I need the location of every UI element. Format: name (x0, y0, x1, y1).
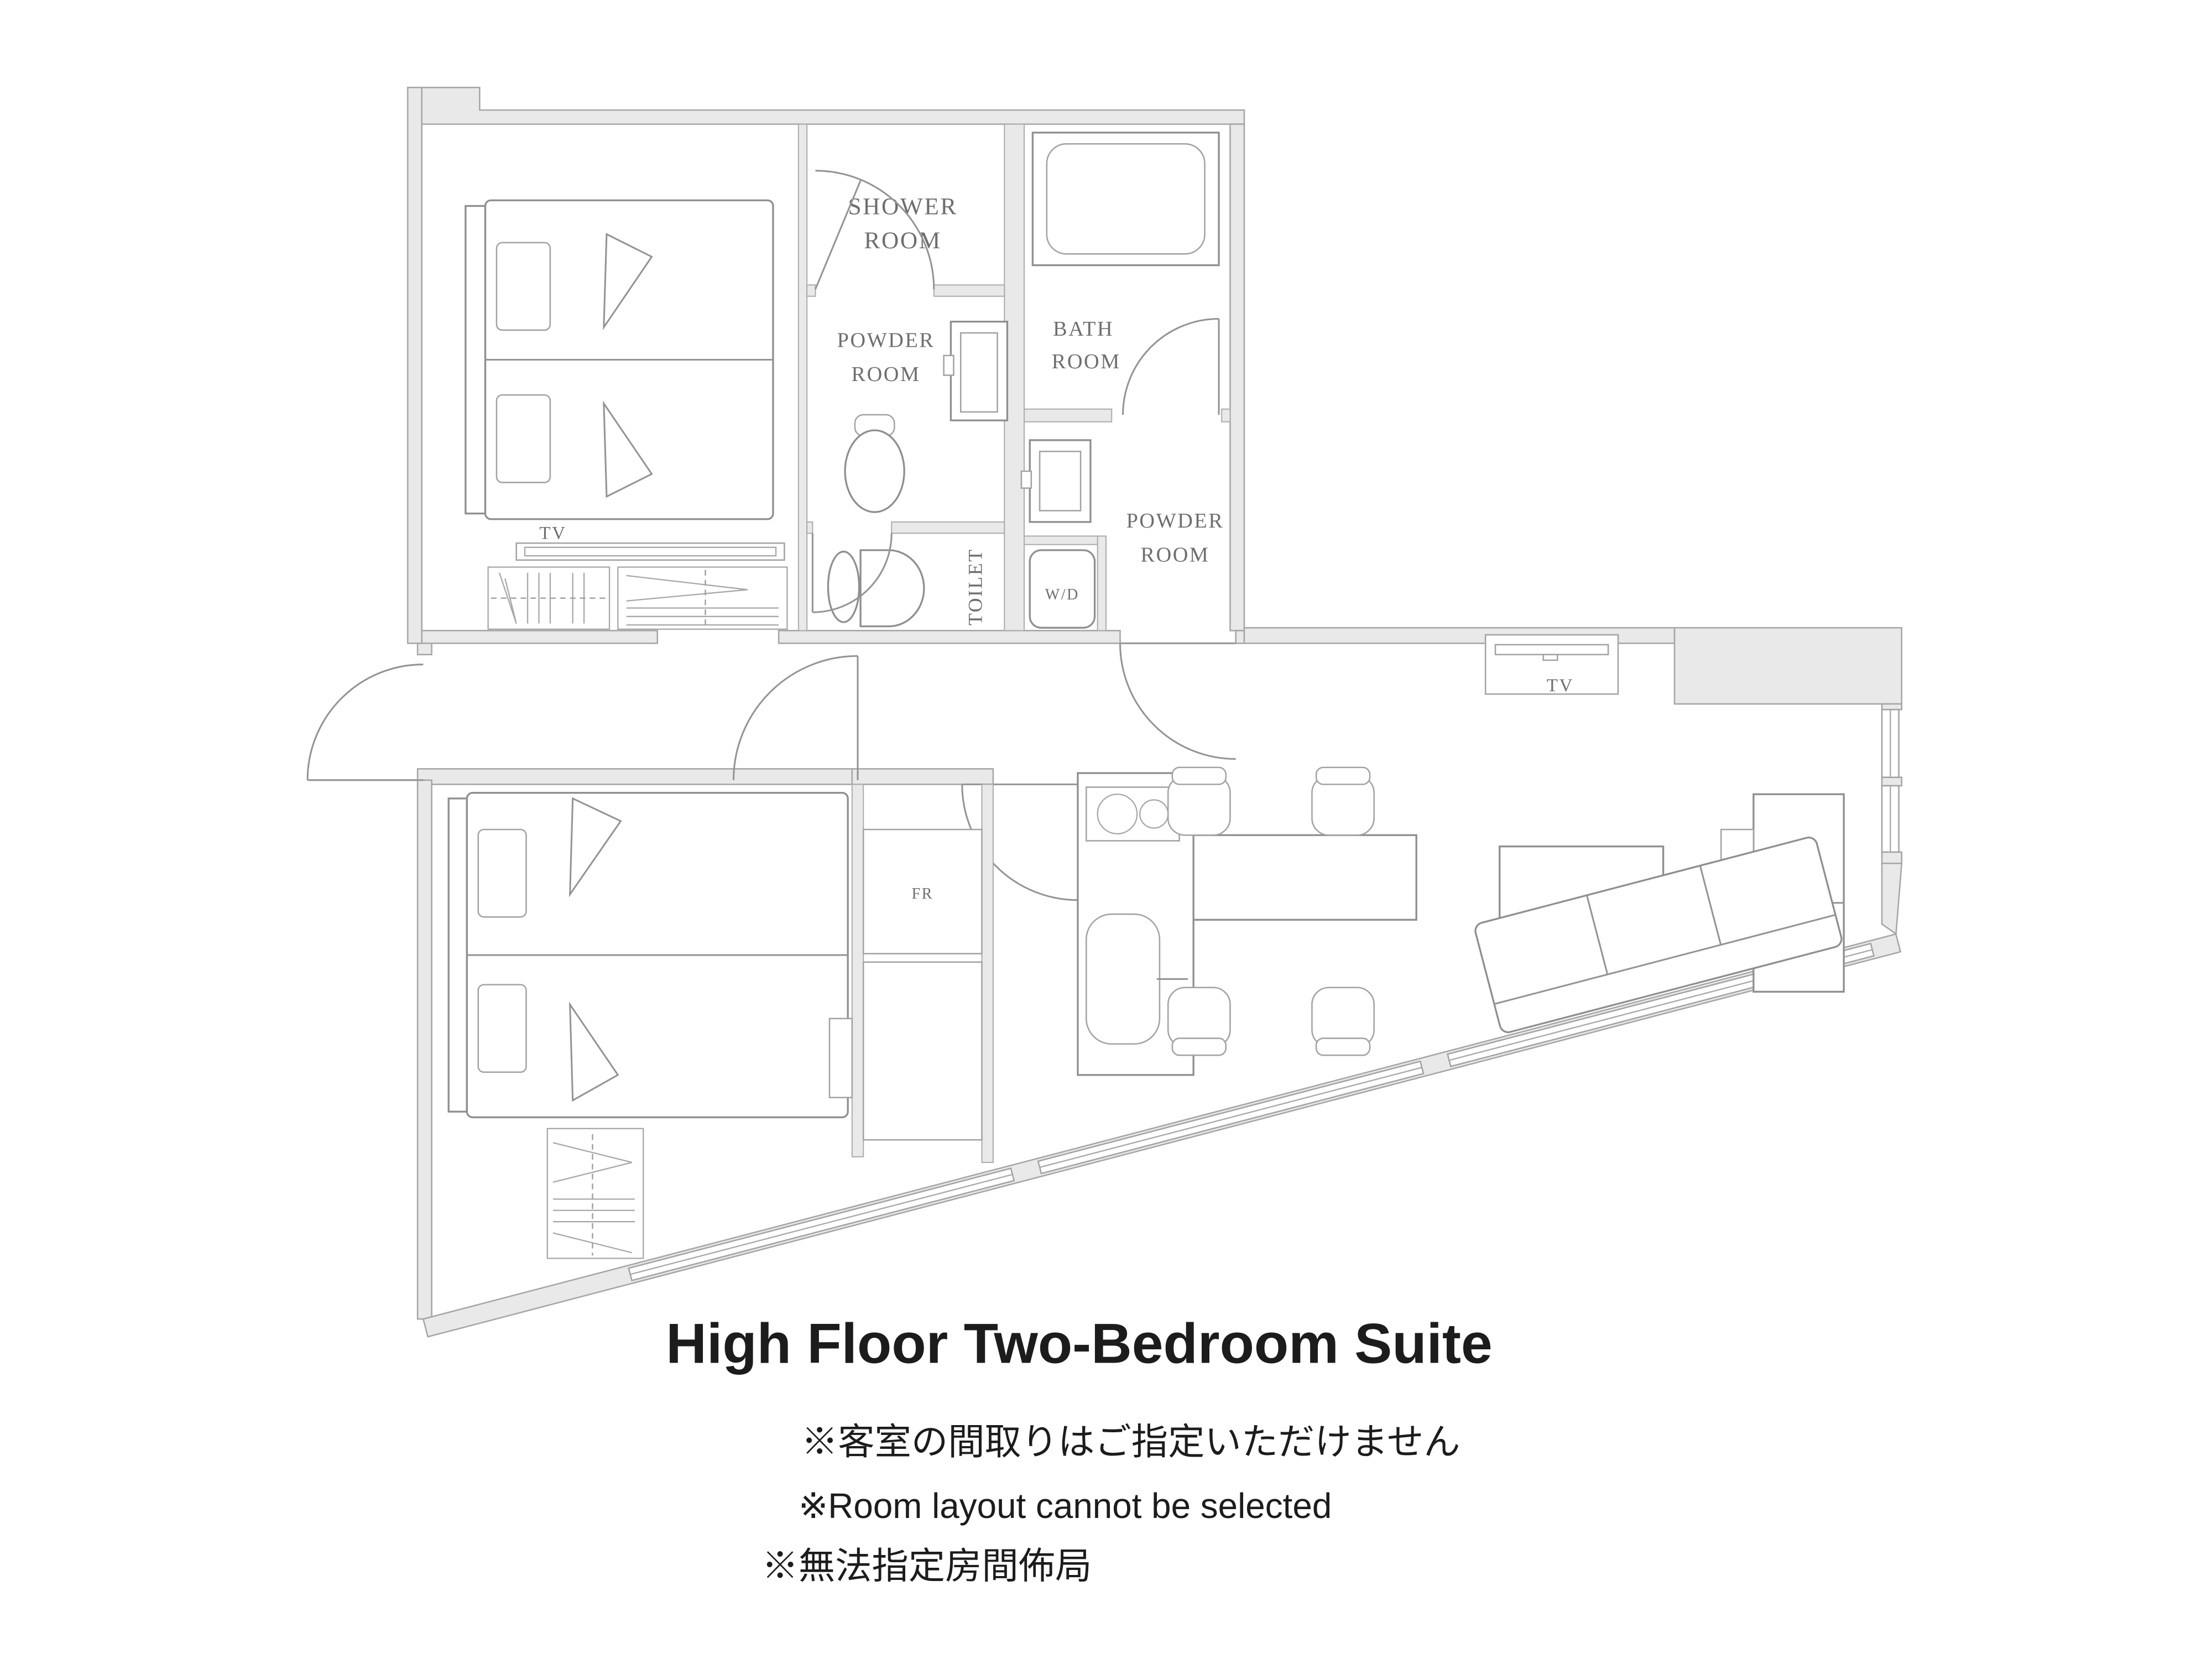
svg-text:ROOM: ROOM (1052, 350, 1121, 373)
tv-shelf (1495, 645, 1608, 655)
bedroom1-closet (488, 567, 787, 629)
living-tv-niche: TV (1485, 635, 1618, 696)
dining-chair (1312, 988, 1374, 1055)
note-en: ※Room layout cannot be selected (799, 1486, 1332, 1526)
pillow (497, 395, 550, 482)
floor-plan-page: TV SHOWER ROOM POWDER ROOM (0, 0, 2212, 1659)
fridge-label: FR (912, 885, 933, 902)
dining-chair (1168, 988, 1230, 1055)
svg-text:ROOM: ROOM (852, 363, 921, 386)
vanity-handle (1021, 471, 1031, 488)
bedroom2-beds (448, 793, 848, 1118)
tv-label-living: TV (1547, 675, 1574, 696)
door-arc (1123, 319, 1219, 415)
shower-room: SHOWER ROOM (815, 171, 957, 289)
vanity-handle (944, 356, 954, 375)
powder-room-2: POWDER ROOM W/D (1021, 440, 1236, 759)
fridge-column: FR (830, 784, 993, 1162)
dining-area (1168, 768, 1416, 1055)
toilet-label: TOILET (964, 548, 987, 625)
door-arc (1120, 643, 1236, 759)
svg-text:ROOM: ROOM (1141, 543, 1210, 566)
dining-chair (1312, 768, 1374, 835)
wd-label: W/D (1045, 586, 1079, 603)
door-leaf (815, 181, 860, 289)
pedestal-sink (845, 415, 904, 512)
bath-vanity (944, 322, 1008, 421)
pillow (478, 830, 526, 917)
pillow (497, 243, 550, 330)
toilet-room: TOILET (812, 533, 986, 626)
bedroom1-tv-console: TV (517, 523, 785, 560)
bath-room-label: BATH (1053, 317, 1114, 341)
note-jp: ※客室の間取りはご指定いただけません (801, 1422, 1460, 1463)
bedroom1: TV (466, 200, 787, 629)
dining-table (1193, 835, 1416, 920)
tv-label-bedroom: TV (539, 523, 566, 543)
bathtub (1032, 133, 1219, 265)
powder-room-1: POWDER ROOM (837, 322, 1008, 512)
toilet-fixture (828, 550, 924, 627)
side-shelf (830, 1019, 852, 1098)
bedroom2-closet (547, 1129, 643, 1259)
shower-room-label: SHOWER (848, 194, 957, 220)
bedroom1-beds (466, 200, 773, 519)
plan-title: High Floor Two-Bedroom Suite (666, 1312, 1492, 1375)
washer-dryer: W/D (1030, 550, 1094, 628)
lower-cabinet (863, 962, 982, 1140)
powder-room2-label: POWDER (1126, 509, 1224, 533)
pillow (478, 985, 526, 1072)
note-cn: ※無法指定房間佈局 (762, 1546, 1092, 1587)
stove (1086, 787, 1179, 841)
entry-doors (307, 656, 858, 780)
dining-chair (1168, 768, 1230, 835)
bath-room: BATH ROOM (1032, 133, 1219, 415)
powder-room1-label: POWDER (837, 329, 935, 352)
powder2-vanity (1021, 440, 1091, 522)
entry-door-arc (307, 665, 423, 780)
hall-door-arc (734, 656, 858, 780)
svg-text:ROOM: ROOM (864, 227, 941, 254)
floor-plan: TV SHOWER ROOM POWDER ROOM (0, 0, 2212, 1659)
